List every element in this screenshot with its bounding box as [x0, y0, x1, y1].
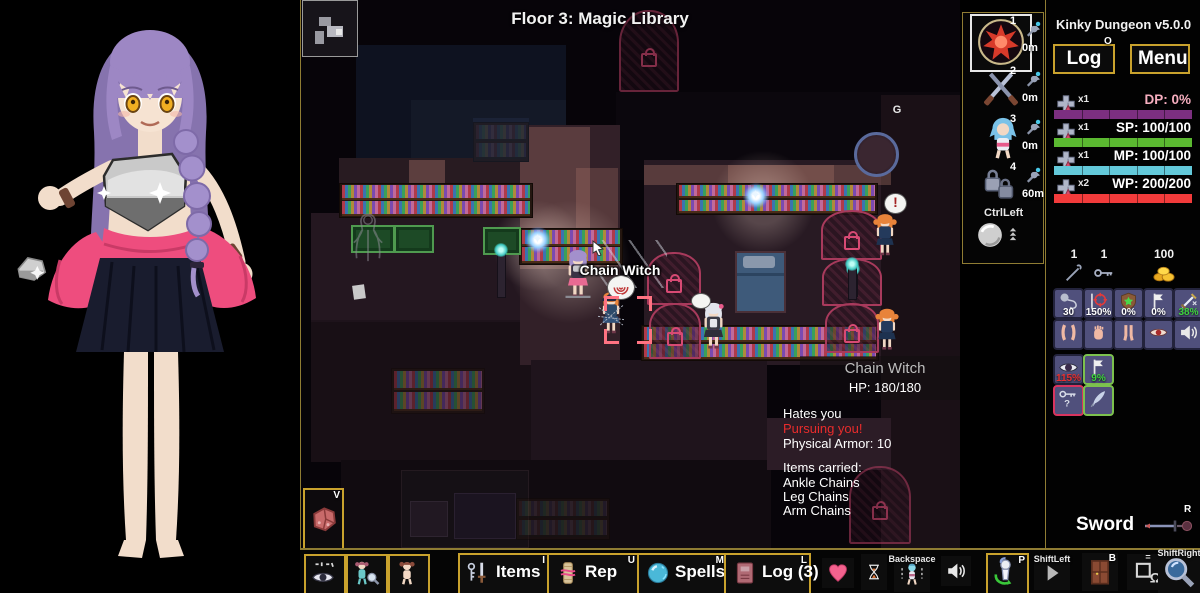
reputation-button[interactable]: RepU — [547, 553, 639, 593]
dp-potion-count: x1 — [1078, 94, 1089, 105]
bar-tick — [1082, 110, 1083, 119]
arms-status-button[interactable] — [1053, 319, 1084, 350]
log-hotkey: O — [1104, 36, 1112, 47]
struggle-button[interactable]: Backspace — [894, 556, 930, 592]
sp-stat-label: SP: 100/100 — [1116, 120, 1191, 135]
inspect-doll-button[interactable] — [346, 554, 388, 593]
slot-range: 0m — [1022, 92, 1038, 104]
bar-tick — [1082, 138, 1083, 147]
map-floor-tile — [531, 360, 767, 470]
status-value: 150% — [1085, 307, 1112, 318]
door-button-hotkey: B — [1109, 553, 1116, 564]
player-portrait — [0, 0, 300, 593]
sp-potion-count: x1 — [1078, 122, 1089, 133]
speaker-status-button[interactable] — [1173, 319, 1200, 350]
up-arrows-icon — [1006, 221, 1020, 247]
equipped-weapon-label[interactable]: Sword — [1076, 514, 1134, 536]
tooltip-line: Leg Chains — [783, 489, 849, 504]
slot-range: 0m — [1022, 42, 1038, 54]
magic-orb[interactable] — [743, 183, 769, 209]
dagger-status-button[interactable]: 38% — [1173, 288, 1200, 319]
torch — [497, 250, 506, 298]
speaker-icon — [1178, 322, 1199, 343]
slot-number: 1 — [1010, 15, 1016, 27]
target-reticle — [604, 296, 652, 344]
enemy-hp: HP: 180/180 — [800, 380, 970, 395]
quill-status-button[interactable] — [1083, 385, 1114, 416]
dp-stat-fill — [1054, 110, 1192, 119]
bed[interactable] — [735, 251, 786, 313]
tooltip-line: Ankle Chains — [783, 475, 860, 490]
hotbar-column: 10m20m30m460mCtrlLeft — [960, 0, 1045, 548]
items-button[interactable]: ItemsI — [458, 553, 549, 593]
weapon-hotkey: R — [1184, 504, 1191, 515]
slot-range: 0m — [1022, 140, 1038, 152]
tooltip-line: Physical Armor: 10 — [783, 436, 891, 451]
crosshair-status-button[interactable]: 150% — [1083, 288, 1114, 319]
locked-door[interactable] — [649, 303, 701, 359]
bar-tick — [1137, 110, 1138, 119]
enemy-name: Chain Witch — [800, 360, 970, 377]
reading-table — [394, 225, 434, 253]
ghost-statue — [351, 211, 385, 263]
struggle-doll-icon — [898, 560, 926, 588]
hand-icon — [1088, 322, 1109, 343]
log-button-hotkey: L — [801, 555, 807, 566]
game-screen: ! Floor 3: Magic Library Chain Witch G V… — [0, 0, 1200, 593]
flag-status-button[interactable]: 0% — [1143, 288, 1174, 319]
fast-forward-button[interactable]: ShiftLeft — [1034, 556, 1070, 590]
book-stack — [410, 501, 448, 537]
bookshelf — [391, 368, 485, 414]
heart-icon-button[interactable] — [822, 558, 854, 588]
hotbar-slot-1[interactable] — [976, 17, 1026, 67]
bookshelf-row — [519, 501, 607, 518]
paper-scrap — [352, 284, 366, 300]
key-question-icon: ? — [1058, 388, 1079, 409]
key-count: 1 — [1087, 247, 1121, 261]
status-value: 30 — [1055, 307, 1082, 318]
door-button[interactable]: B — [1082, 553, 1118, 591]
wrench-icon — [1023, 20, 1042, 39]
bar-tick — [1137, 194, 1138, 203]
status-value: 0% — [1145, 307, 1172, 318]
wp-potion-count: x2 — [1078, 178, 1089, 189]
sound-button[interactable] — [941, 556, 971, 586]
slot-number: 4 — [1010, 161, 1016, 173]
bar-tick — [1137, 166, 1138, 175]
items-button-label: Items — [496, 562, 540, 582]
doll-icon — [392, 558, 422, 588]
enemy-tooltip: Chain Witch HP: 180/180 Hates youPursuin… — [770, 356, 970, 526]
dp-stat-bar — [1054, 110, 1192, 119]
bar-tick — [1082, 166, 1083, 175]
meat-icon — [308, 504, 338, 534]
resolution-button-hotkey: = — [1145, 552, 1150, 562]
bar-tick — [1137, 138, 1138, 147]
key-question-status-button[interactable]: ? — [1053, 385, 1084, 416]
dp-stat-label: DP: 0% — [1144, 92, 1191, 107]
furniture — [401, 470, 529, 548]
key-icon — [1093, 262, 1115, 284]
target-name-label: Chain Witch — [550, 262, 690, 278]
consumable-quickslot-button[interactable]: V — [303, 488, 344, 550]
enemy-sprite[interactable] — [872, 212, 898, 261]
pose-button[interactable]: P — [986, 553, 1029, 593]
minimap[interactable] — [302, 0, 358, 57]
spells-button[interactable]: SpellsM — [637, 553, 728, 593]
speaker-icon — [945, 560, 967, 582]
bookshelf-row — [394, 392, 482, 411]
lockpick-icon — [1063, 262, 1085, 284]
torch — [848, 264, 857, 300]
menu-button[interactable]: Menu — [1130, 44, 1190, 74]
zoom-button[interactable]: ShiftRight — [1158, 550, 1200, 593]
wrench-icon — [1023, 166, 1042, 185]
bookshelf-row — [519, 520, 607, 537]
log-panel-button[interactable]: Log — [1053, 44, 1115, 74]
bar-tick — [1109, 138, 1110, 147]
rope-orb-status-button[interactable]: 30 — [1053, 288, 1084, 319]
doll-inspect-icon — [350, 558, 380, 588]
status-value: 9% — [1085, 373, 1112, 384]
scroll-icon — [555, 560, 581, 586]
items-button-hotkey: I — [542, 555, 545, 566]
player-portrait-panel — [0, 0, 300, 593]
wrench-icon — [1023, 70, 1042, 89]
heart-icon — [827, 562, 849, 584]
right-panel: Kinky Dungeon v5.0.0 Log O Menu x1DP: 0%… — [1045, 0, 1200, 548]
doll-button[interactable] — [388, 554, 430, 593]
key-sword-icon — [466, 560, 492, 586]
bottom-bar: ItemsIRepUSpellsMLog (3)LBackspacePShift… — [300, 548, 1200, 593]
svg-text:?: ? — [1064, 398, 1070, 409]
gold-icon — [1153, 262, 1175, 284]
fast-forward-button-hotkey: ShiftLeft — [1034, 554, 1071, 564]
big-eye-status-button[interactable]: 115% — [1053, 354, 1084, 385]
hourglass-icon — [865, 563, 883, 581]
wrench-icon — [1023, 118, 1042, 137]
legs-status-button[interactable] — [1113, 319, 1144, 350]
bar-tick — [1164, 110, 1165, 119]
book-icon — [732, 560, 758, 586]
speech-bubble — [691, 293, 711, 309]
legs-icon — [1118, 322, 1139, 343]
mp-stat-label: MP: 100/100 — [1114, 148, 1191, 163]
quill-icon — [1088, 388, 1109, 409]
arms-icon — [1058, 322, 1079, 343]
sword-icon[interactable] — [1144, 518, 1192, 534]
bookshelf — [473, 122, 529, 162]
hand-status-button[interactable] — [1083, 319, 1114, 350]
bookshelf-row — [394, 371, 482, 390]
wp-stat-label: WP: 200/200 — [1112, 176, 1191, 191]
padlock-icon — [844, 236, 860, 250]
bar-tick — [1164, 166, 1165, 175]
bar-tick — [1109, 194, 1110, 203]
alert-bubble: ! — [884, 193, 907, 214]
padlock-icon — [641, 53, 657, 67]
zoom-button-hotkey: ShiftRight — [1158, 548, 1200, 558]
slot-number: 3 — [1010, 113, 1016, 125]
mp-stat-fill — [1054, 166, 1192, 175]
bookshelf-row — [476, 125, 526, 141]
floor-title: Floor 3: Magic Library — [450, 9, 750, 29]
reticle-corner — [637, 296, 652, 311]
enemy-tooltip-plate: Chain Witch HP: 180/180 — [800, 356, 970, 400]
lockpick-count: 1 — [1057, 247, 1091, 261]
tooltip-line: Arm Chains — [783, 503, 851, 518]
bar-tick — [1109, 166, 1110, 175]
eye-status-button[interactable] — [1143, 319, 1174, 350]
spells-button-hotkey: M — [716, 555, 724, 566]
goal-marker: G — [886, 104, 908, 116]
vision-toggle-button[interactable] — [304, 554, 346, 593]
tooltip-line: Hates you — [783, 406, 842, 421]
reputation-button-hotkey: U — [628, 555, 635, 566]
padlock-icon — [844, 329, 860, 343]
bar-tick — [1164, 138, 1165, 147]
bar-tick — [1109, 110, 1110, 119]
struggle-button-hotkey: Backspace — [888, 554, 935, 564]
mouse-cursor-icon — [592, 240, 604, 256]
reticle-corner — [604, 296, 619, 311]
game-title: Kinky Dungeon v5.0.0 — [1046, 17, 1200, 32]
wp-stat-fill — [1054, 194, 1192, 203]
bed-pillow — [743, 256, 775, 268]
push-hotkey: CtrlLeft — [984, 207, 1023, 219]
tooltip-line: Pursuing you! — [783, 421, 863, 436]
doll-arrow-icon — [990, 557, 1021, 588]
padlock-icon — [667, 332, 683, 346]
orb-icon — [645, 560, 671, 586]
pose-button-hotkey: P — [1018, 555, 1025, 566]
padlock-icon — [666, 279, 682, 293]
tooltip-line: Items carried: — [783, 460, 862, 475]
bookshelf — [516, 498, 610, 540]
meat-hotkey: V — [333, 490, 340, 501]
wp-stat-bar — [1054, 194, 1192, 203]
slot-number: 2 — [1010, 65, 1016, 77]
mp-stat-bar — [1054, 166, 1192, 175]
bookshelf-row — [342, 185, 530, 200]
portal-hole[interactable] — [854, 132, 899, 177]
shield-target-status-button[interactable]: 0% — [1113, 288, 1144, 319]
log-button[interactable]: Log (3)L — [724, 553, 811, 593]
bed-fold — [737, 273, 784, 276]
status-value: 38% — [1175, 307, 1200, 318]
reputation-button-label: Rep — [585, 562, 617, 582]
status-value: 115% — [1055, 373, 1082, 384]
organ — [454, 493, 516, 539]
status-value: 0% — [1115, 307, 1142, 318]
flag-status-button[interactable]: 9% — [1083, 354, 1114, 385]
log-button-label: Log (3) — [762, 562, 819, 582]
bar-tick — [1164, 194, 1165, 203]
reticle-corner — [604, 329, 619, 344]
rock-item-icon — [12, 250, 50, 288]
wait-button[interactable] — [861, 554, 887, 590]
sp-stat-fill — [1054, 138, 1192, 147]
bookshelf-row — [476, 143, 526, 159]
eye-icon — [1148, 322, 1169, 343]
bookshelf-row — [679, 185, 875, 198]
gold-count: 100 — [1147, 247, 1181, 261]
magic-orb[interactable] — [525, 227, 551, 253]
mp-potion-count: x1 — [1078, 150, 1089, 161]
eye-config-icon — [308, 558, 338, 588]
reticle-corner — [637, 329, 652, 344]
magnifier-icon — [1162, 555, 1196, 589]
locked-door[interactable] — [825, 303, 879, 353]
slot-range: 60m — [1022, 188, 1044, 200]
sp-stat-bar — [1054, 138, 1192, 147]
bar-tick — [1082, 194, 1083, 203]
hotbar-slot-3[interactable] — [980, 115, 1026, 161]
enemy-sprite[interactable] — [874, 307, 900, 355]
push-rock-button[interactable] — [975, 220, 1005, 250]
